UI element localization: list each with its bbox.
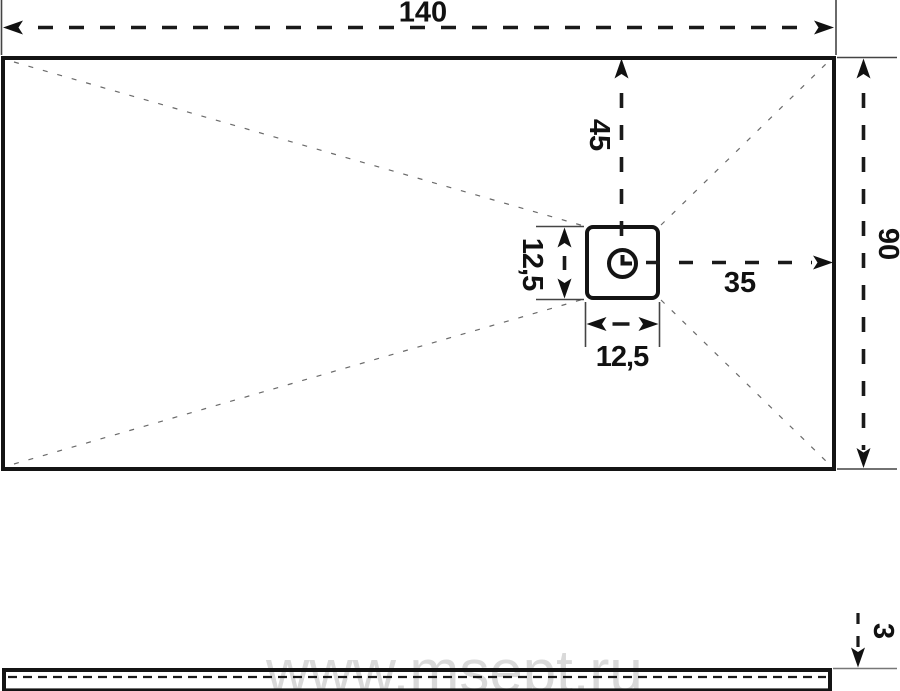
svg-text:45: 45 (583, 119, 615, 151)
svg-text:12,5: 12,5 (516, 238, 548, 291)
svg-text:140: 140 (399, 0, 447, 29)
svg-text:www.msept.ru: www.msept.ru (265, 638, 643, 691)
svg-text:12,5: 12,5 (596, 341, 649, 373)
svg-text:3: 3 (867, 623, 899, 639)
svg-text:35: 35 (724, 267, 756, 299)
svg-text:90: 90 (872, 228, 900, 260)
